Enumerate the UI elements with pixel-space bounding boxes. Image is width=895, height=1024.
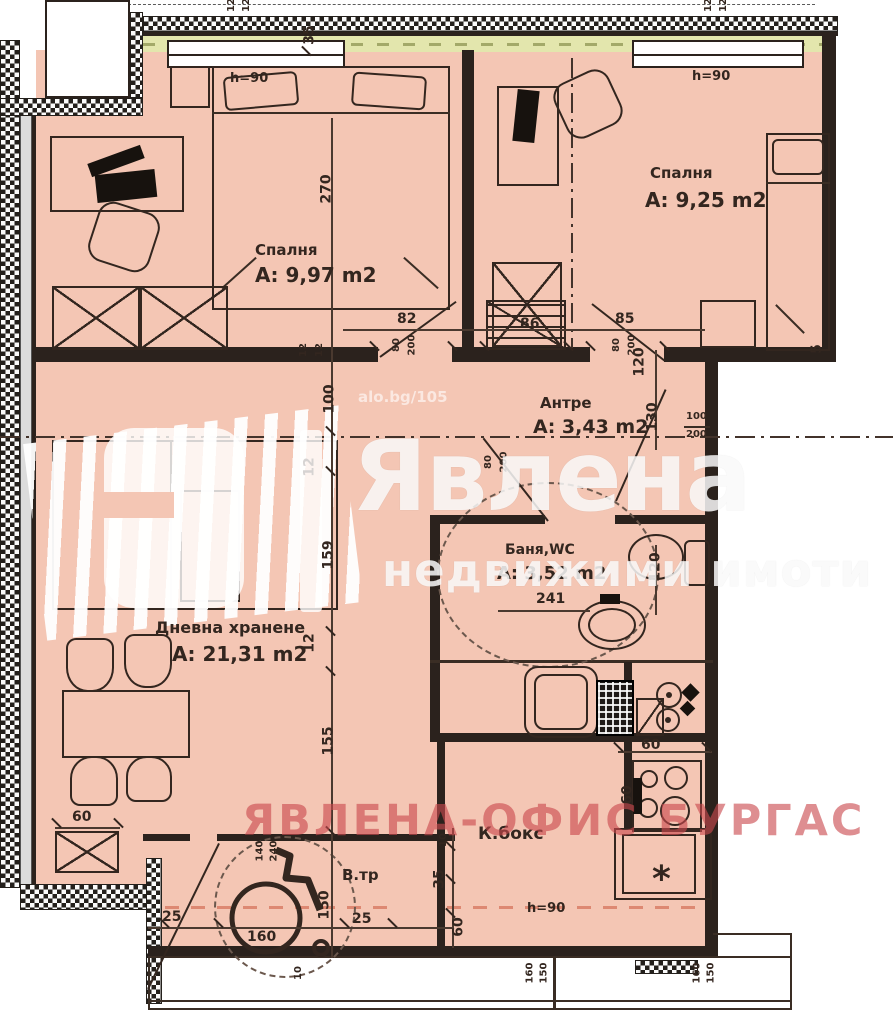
burner-icon (640, 770, 658, 788)
listing-watermark: alo.bg/105 (358, 388, 448, 406)
dim-label: 12 (299, 343, 309, 357)
terrace-bottom-line1 (148, 1000, 792, 1002)
dim-label: 270 (320, 174, 334, 203)
wardrobe-icon (52, 286, 140, 350)
terrace-right-line (790, 933, 792, 1010)
wall-top (143, 16, 838, 32)
dining-chair-icon (124, 634, 172, 688)
dim-label: 25 (162, 910, 181, 924)
dim-label: 60 (452, 917, 466, 936)
room-name-bedroom2: Спалня (650, 166, 712, 181)
dim-label: 12 (227, 0, 237, 12)
dim-label: 12 (704, 0, 714, 12)
room-name-living: Дневна хранене (155, 620, 305, 636)
brand-logo-notch (104, 492, 174, 518)
dim-label: 155 (322, 726, 336, 755)
pillow-icon (772, 139, 824, 175)
bed-double-headline (212, 112, 450, 114)
sink-basin-icon (588, 608, 636, 642)
brand-sub-watermark: недвижими имоти (382, 544, 872, 597)
terrace-bottom-line2 (148, 1008, 792, 1010)
recess-notch (45, 0, 130, 98)
wall-bottom-left (20, 884, 147, 910)
wall-terrace-top-a (143, 834, 190, 841)
wardrobe-icon (140, 286, 228, 350)
riser-pipe-icon (656, 682, 682, 708)
room-area-living: А: 21,31 m2 (172, 644, 307, 664)
cabinet-x-icon (55, 831, 119, 873)
dim-label: 85 (615, 312, 634, 326)
office-watermark: ЯВЛЕНА-ОФИС БУРГАС (242, 796, 865, 846)
dim-label: 159 (322, 540, 336, 569)
washing-machine-icon (596, 680, 634, 736)
dim-label: 60 (72, 810, 91, 824)
terrace-divider (553, 956, 556, 1010)
dim-label: 80 (612, 338, 622, 352)
dim-line (618, 751, 712, 753)
dim-label: 10 (294, 966, 304, 980)
dim-label: 12 (315, 343, 325, 357)
floor-plan: * 12 12 35 12 12 270 12 12 8 (0, 0, 895, 1024)
cabinet-icon (700, 300, 756, 348)
riser-pipe-icon (656, 708, 680, 732)
window-label: h=90 (527, 902, 565, 915)
dim-label: 5 (810, 344, 824, 354)
star-symbol: * (652, 862, 671, 898)
brand-watermark: Явлена (352, 420, 750, 534)
bathtub-basin-icon (534, 674, 588, 730)
wall-notch-bottom (0, 98, 143, 116)
window-label: h=90 (692, 70, 730, 83)
wall-left (0, 40, 20, 888)
wall-terrace-hatch (635, 960, 698, 974)
brand-logo-bar (300, 430, 322, 612)
dim-label: 82 (397, 312, 416, 326)
dim-label: 160 (692, 963, 702, 984)
burner-icon (664, 766, 688, 790)
terrace-right-top (713, 933, 792, 935)
dim-label: 160 (247, 930, 276, 944)
dining-chair-icon (126, 756, 172, 802)
dim-label: 12 (242, 0, 252, 12)
dining-table-icon (62, 690, 190, 758)
dim-label: 35 (303, 25, 317, 44)
dim-line (498, 610, 590, 612)
dim-line (55, 827, 120, 829)
window-bedroom1 (167, 40, 345, 68)
dim-label: 25 (352, 912, 371, 926)
room-name-hallway: Антре (540, 396, 592, 411)
window-line-kitchen (447, 906, 700, 909)
wall-notch-right (130, 12, 143, 98)
window-bedroom2 (632, 40, 804, 68)
window-label: h=90 (230, 72, 268, 85)
dim-label: 150 (539, 963, 549, 984)
dim-label: 80 (392, 338, 402, 352)
brand-logo-glyph (104, 428, 244, 608)
dim-label: 150 (706, 963, 716, 984)
dim-label: 60 (641, 738, 660, 752)
pillow-icon (351, 71, 427, 110)
wall-kitchen-left (437, 742, 445, 958)
dim-label: 100 (323, 384, 337, 413)
dim-label: 86 (520, 317, 539, 331)
dim-label: 200 (407, 335, 417, 356)
room-name-terrace: В.тр (342, 868, 379, 883)
bed-single-line (766, 182, 830, 184)
dim-line (148, 927, 453, 929)
dining-chair-icon (70, 756, 118, 806)
room-area-bedroom1: А: 9,97 m2 (255, 265, 377, 285)
dim-label: 12 (719, 0, 729, 12)
dim-label: 160 (525, 963, 535, 984)
dining-chair-icon (66, 638, 114, 692)
room-area-bedroom2: А: 9,25 m2 (645, 190, 767, 210)
room-name-bedroom1: Спалня (255, 243, 317, 258)
wardrobe-icon (492, 262, 562, 347)
dim-label: 120 (633, 347, 647, 376)
dim-label: 35 (433, 869, 447, 888)
nightstand-icon (170, 66, 210, 108)
wall-bedroom-divider (462, 50, 474, 347)
dim-label: 150 (318, 890, 332, 919)
